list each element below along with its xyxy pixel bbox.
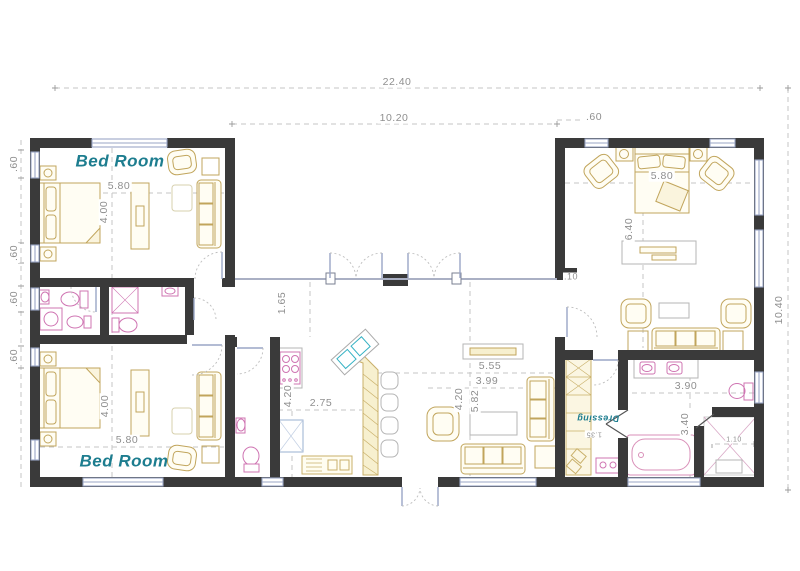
dresser-icon: [131, 183, 149, 249]
dimension-bathroom-width: 3.90: [673, 381, 699, 392]
armchair-icon: [581, 152, 621, 192]
bar-stools: [381, 372, 398, 457]
dimension-kitchen-height: 4.20: [283, 383, 294, 409]
armchair-icon: [166, 148, 197, 176]
nightstand-icon: [40, 166, 56, 180]
dresser-icon: [131, 370, 149, 436]
coffee-table-icon: [659, 303, 689, 318]
sofa-icon: [527, 377, 554, 441]
dimension-living-height-b: 5.82: [470, 388, 481, 414]
dimension-living-width-b: 3.99: [474, 376, 500, 387]
coffee-table-icon: [470, 412, 517, 435]
dimension-top-offset: .60: [584, 112, 604, 123]
floor-plan: 22.40 10.20 .60 .60 .60 .60 .60 10.40 Be…: [0, 0, 800, 571]
chair-icon: [172, 408, 192, 434]
side-table-icon: [202, 446, 219, 463]
dimension-living-height-a: 4.20: [454, 386, 465, 412]
sofa-icon: [197, 372, 221, 440]
shower-door-icon: [696, 414, 714, 428]
room-label-bedroom1: Bed Room: [76, 153, 165, 170]
dimension-master-offset: .10: [563, 273, 579, 282]
dimension-corridor-height: 1.65: [277, 290, 288, 316]
dimension-bedroom1-height: 4.00: [99, 199, 110, 225]
dimension-dressing-depth: 1.35: [585, 431, 603, 438]
nightstand-icon: [40, 352, 56, 366]
armchair-icon: [166, 444, 197, 472]
dimension-master-height: 6.40: [624, 216, 635, 242]
dimension-bathroom-height: 3.40: [680, 411, 691, 437]
room-label-bedroom2: Bed Room: [80, 453, 169, 470]
side-table-icon: [723, 331, 743, 351]
dimension-total-width: 22.40: [381, 77, 414, 88]
wc-fixtures: [236, 418, 259, 472]
dimension-left-window-4: .60: [9, 347, 20, 367]
dimension-bedroom2-width: 5.80: [114, 435, 140, 446]
kitchen-furniture: [278, 329, 398, 475]
dimension-bedroom2-height: 4.00: [100, 393, 111, 419]
side-table-icon: [628, 331, 648, 351]
toilet-icon: [243, 447, 259, 465]
sofa-icon: [197, 180, 221, 248]
dimension-left-window-2: .60: [9, 243, 20, 263]
dimension-left-window-3: .60: [9, 289, 20, 309]
dimension-left-window-1: .60: [9, 154, 20, 174]
washing-machine-icon: [40, 308, 62, 330]
room-label-dressing: Dressing: [577, 414, 620, 423]
dimension-master-width: 5.80: [649, 171, 675, 182]
dimension-shower-width: 1.10: [725, 437, 743, 444]
side-table-icon: [535, 446, 557, 468]
dimension-right-height: 10.40: [774, 294, 785, 327]
toilet-icon: [112, 318, 119, 332]
dimension-living-width-a: 5.55: [477, 361, 503, 372]
nightstand-icon: [40, 432, 56, 446]
nightstand-icon: [40, 247, 56, 261]
toilet-icon: [80, 291, 88, 308]
dimension-kitchen-width: 2.75: [308, 398, 334, 409]
sofa-icon: [461, 444, 525, 474]
tv-icon: [470, 348, 516, 355]
bidet-icon: [84, 316, 91, 328]
chair-icon: [172, 185, 192, 211]
side-table-icon: [202, 158, 219, 175]
dimension-center-width: 10.20: [378, 113, 411, 124]
dimension-bedroom1-width: 5.80: [106, 181, 132, 192]
